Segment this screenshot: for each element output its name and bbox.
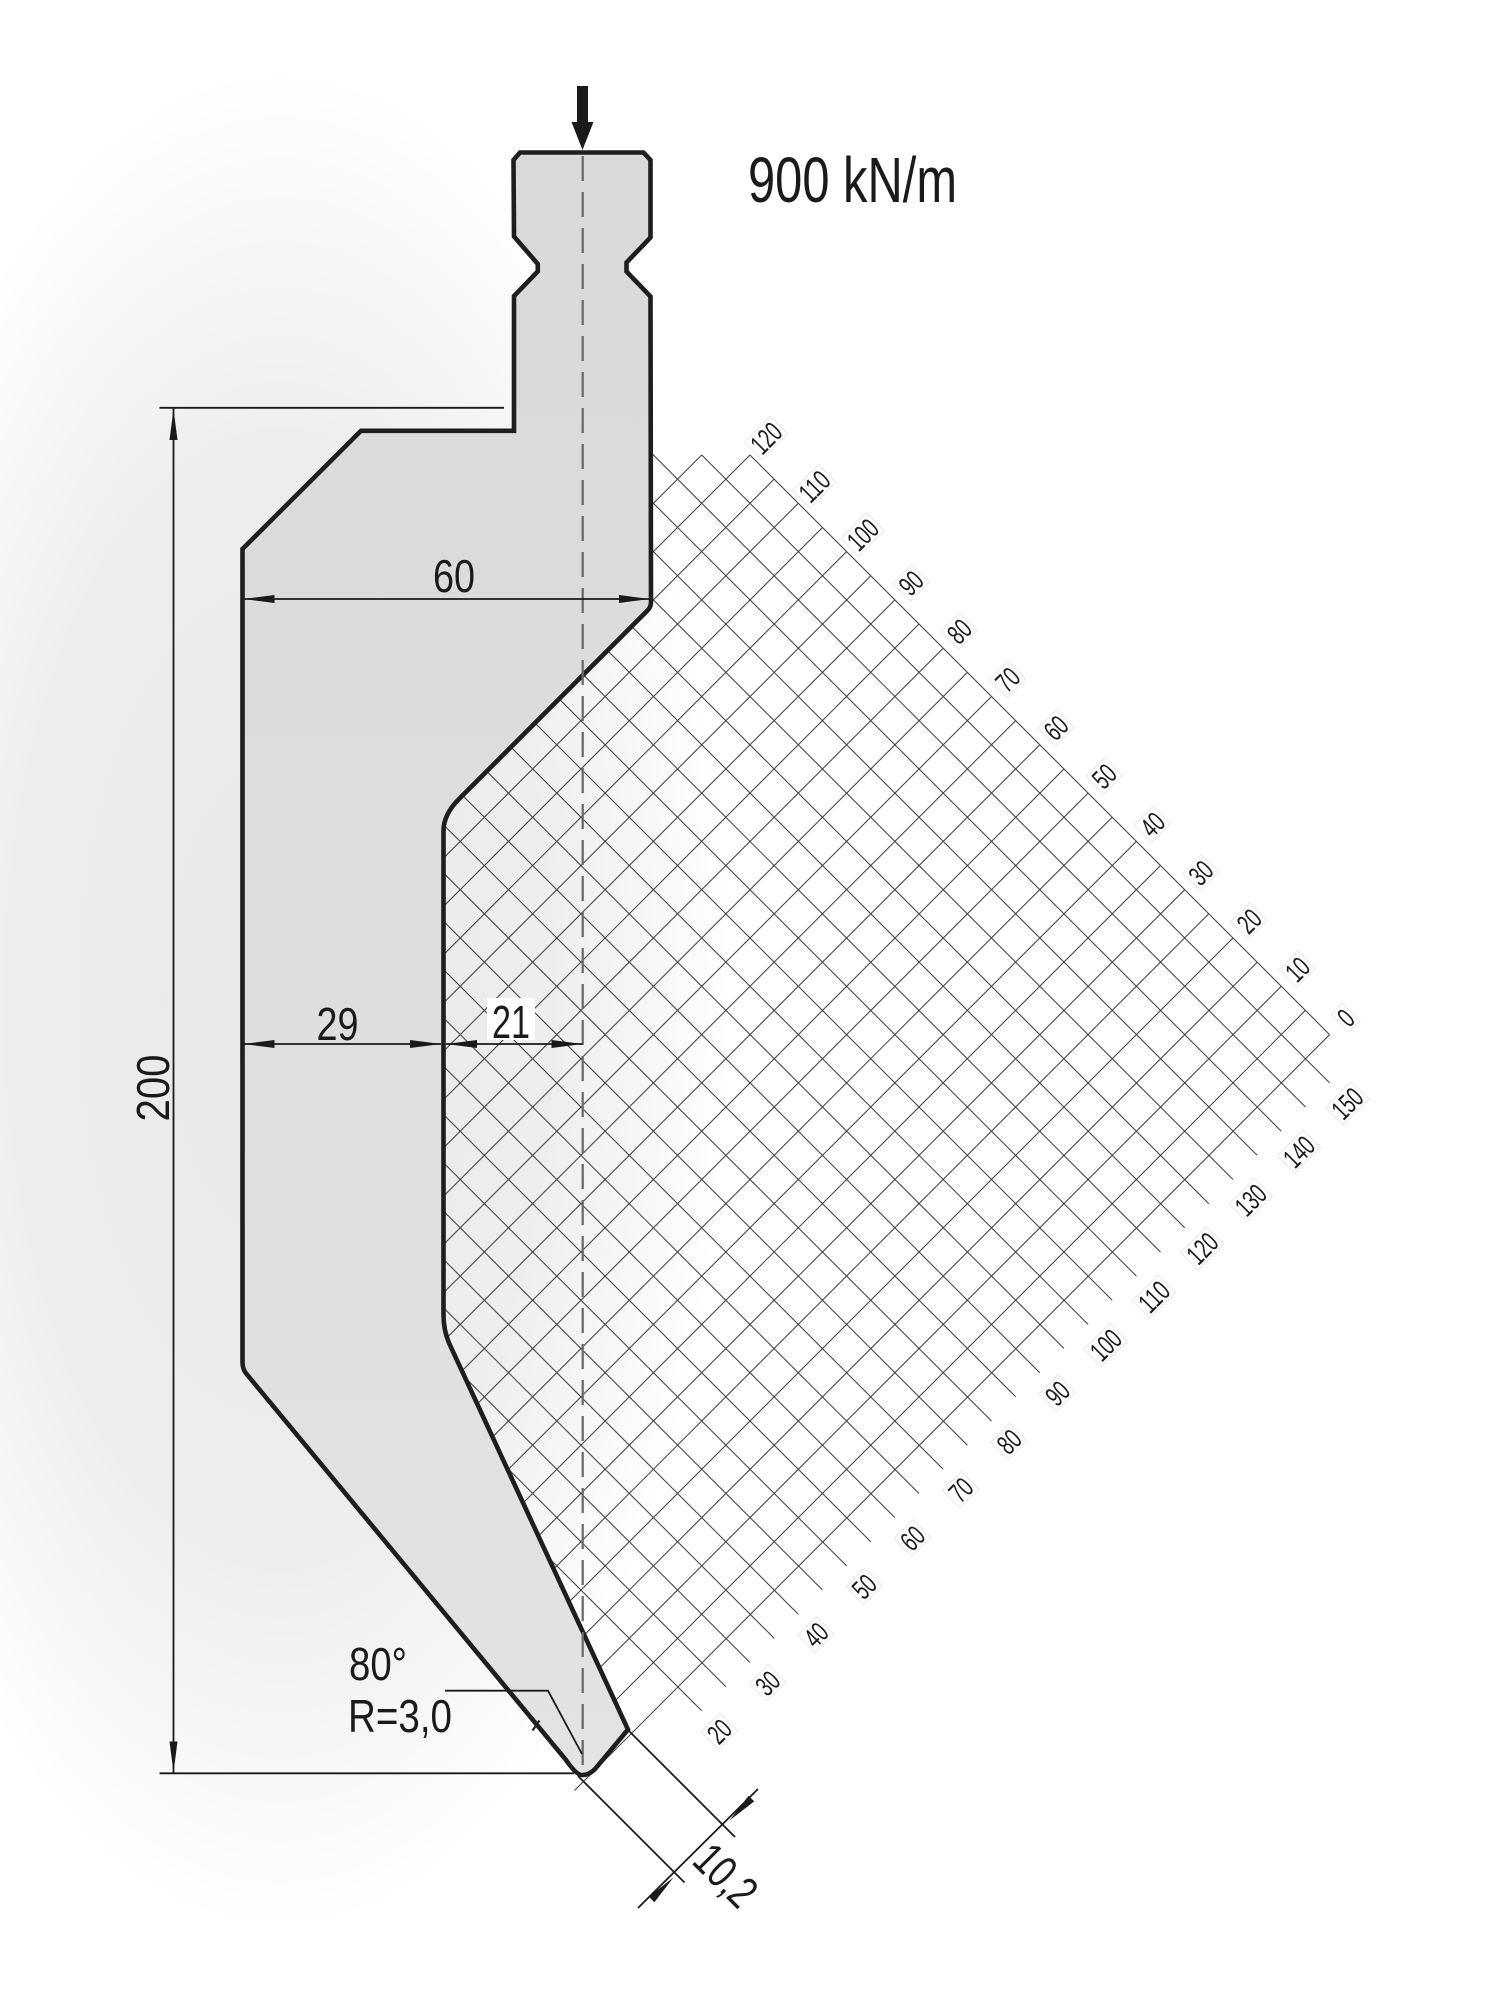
- svg-text:80°: 80°: [349, 1638, 407, 1690]
- svg-text:R=3,0: R=3,0: [348, 1690, 452, 1742]
- svg-text:21: 21: [492, 996, 530, 1048]
- svg-text:60: 60: [433, 550, 475, 602]
- svg-text:29: 29: [317, 998, 359, 1050]
- svg-text:900 kN/m: 900 kN/m: [748, 144, 957, 216]
- svg-text:200: 200: [127, 1055, 179, 1122]
